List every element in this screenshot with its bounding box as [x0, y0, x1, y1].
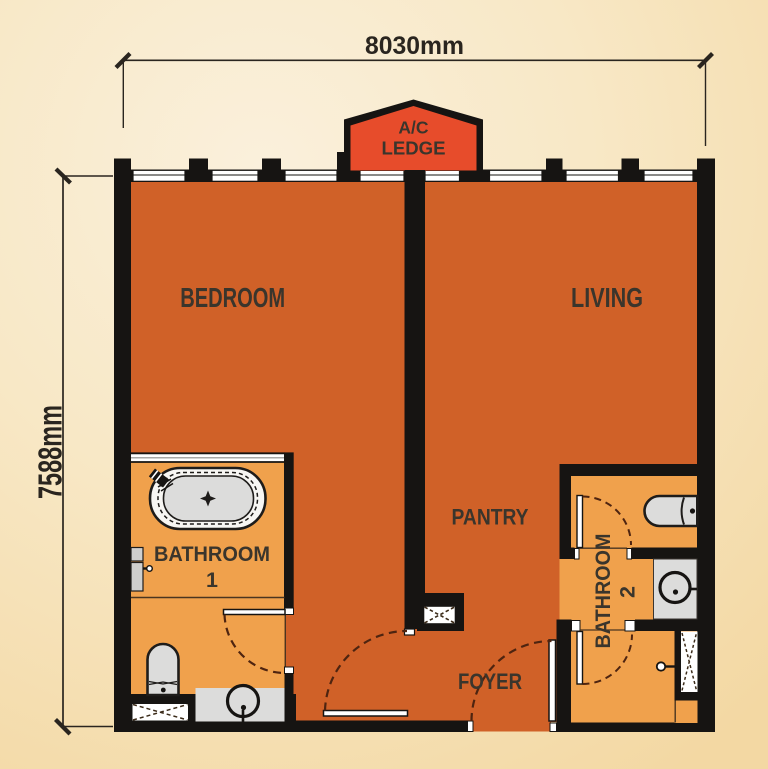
svg-text:BATHROOM: BATHROOM: [591, 534, 615, 649]
svg-text:PANTRY: PANTRY: [452, 505, 529, 530]
svg-text:LEDGE: LEDGE: [382, 138, 446, 159]
svg-text:1: 1: [206, 568, 218, 592]
svg-text:8030mm: 8030mm: [365, 32, 464, 60]
svg-text:2: 2: [616, 586, 640, 598]
svg-text:BATHROOM: BATHROOM: [154, 542, 270, 566]
svg-text:BEDROOM: BEDROOM: [180, 282, 285, 313]
svg-text:FOYER: FOYER: [458, 669, 522, 694]
svg-text:7588mm: 7588mm: [32, 405, 69, 499]
svg-text:LIVING: LIVING: [571, 282, 643, 313]
svg-text:A/C: A/C: [398, 118, 429, 138]
